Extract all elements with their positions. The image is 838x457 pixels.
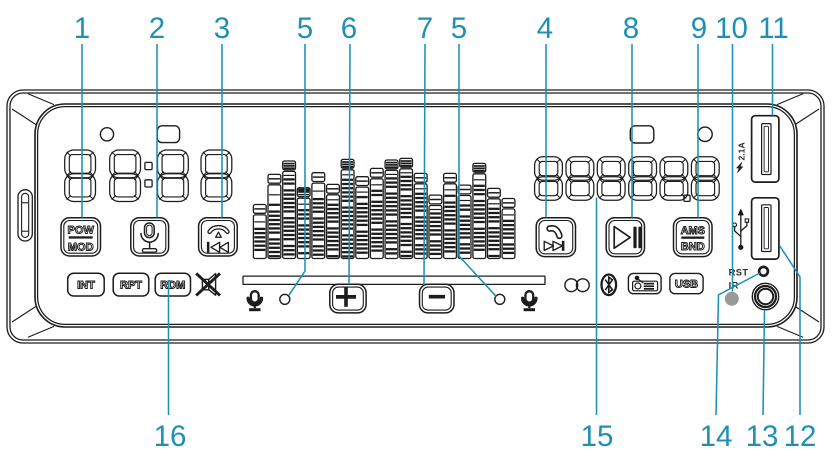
svg-text:16: 16 <box>154 420 187 452</box>
svg-text:RDM: RDM <box>160 280 185 292</box>
svg-text:RPT: RPT <box>120 280 142 292</box>
svg-text:2: 2 <box>149 12 165 45</box>
svg-text:POW: POW <box>68 225 95 237</box>
svg-text:USB: USB <box>675 278 698 290</box>
svg-text:14: 14 <box>700 420 733 452</box>
svg-text:10: 10 <box>715 12 748 45</box>
svg-text:INT: INT <box>77 280 95 292</box>
svg-text:AMS: AMS <box>681 225 705 237</box>
svg-text:6: 6 <box>341 12 357 45</box>
svg-text:MOD: MOD <box>68 241 94 253</box>
svg-text:11: 11 <box>758 12 789 45</box>
svg-text:2.1A: 2.1A <box>737 142 747 160</box>
svg-text:5: 5 <box>297 12 313 45</box>
svg-text:5: 5 <box>451 12 467 45</box>
svg-text:1: 1 <box>74 12 90 45</box>
svg-text:BND: BND <box>681 241 705 253</box>
svg-text:9: 9 <box>691 12 707 45</box>
svg-text:12: 12 <box>784 420 817 452</box>
svg-text:RST: RST <box>729 267 749 278</box>
svg-text:15: 15 <box>581 420 614 452</box>
svg-text:7: 7 <box>417 12 433 45</box>
svg-text:3: 3 <box>214 12 230 45</box>
svg-text:8: 8 <box>623 12 639 45</box>
svg-text:13: 13 <box>746 420 779 452</box>
svg-text:4: 4 <box>537 12 553 45</box>
